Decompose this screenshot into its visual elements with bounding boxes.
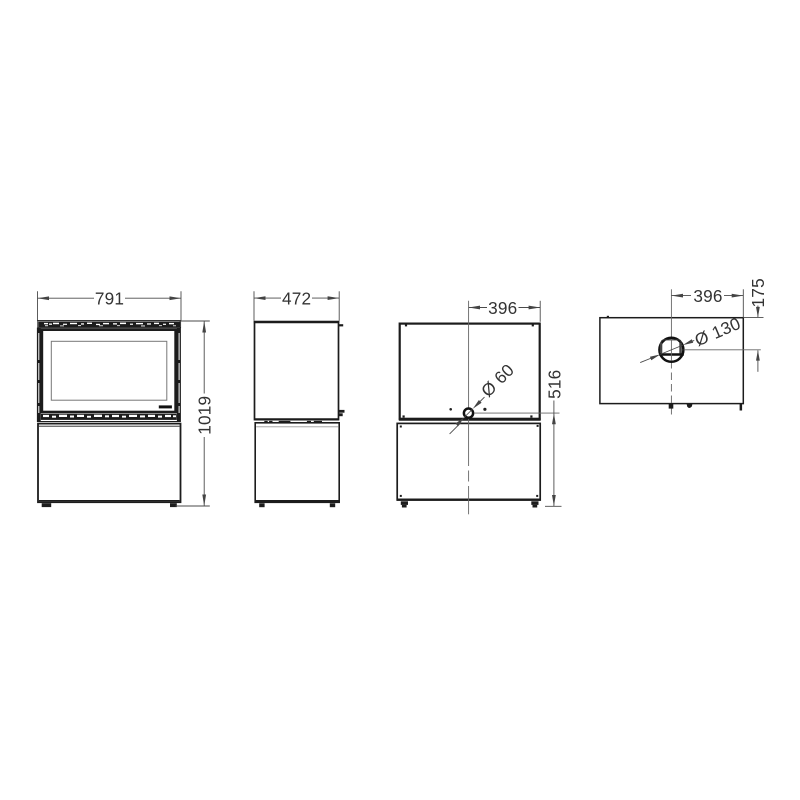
svg-text:791: 791 [95,289,124,309]
svg-text:1019: 1019 [194,396,214,435]
svg-text:396: 396 [488,298,517,318]
svg-text:396: 396 [693,286,722,306]
svg-text:516: 516 [544,370,564,399]
svg-text:175: 175 [748,278,768,307]
svg-text:472: 472 [282,288,311,308]
